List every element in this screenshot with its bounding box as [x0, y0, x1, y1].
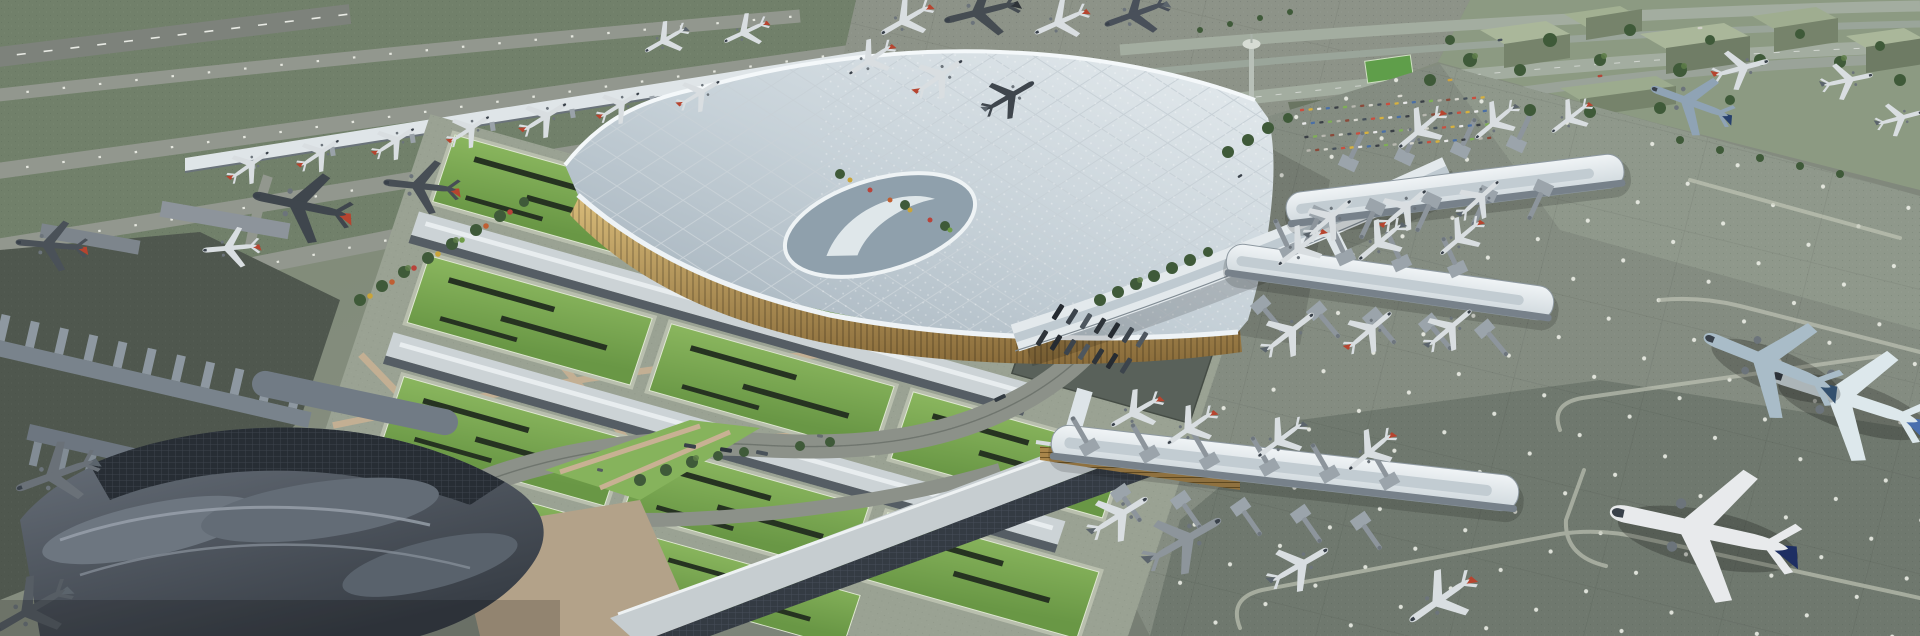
- airport-aerial-rendering: [0, 0, 1920, 636]
- vehicle: [1697, 27, 1702, 30]
- bottom-shade: [0, 600, 560, 636]
